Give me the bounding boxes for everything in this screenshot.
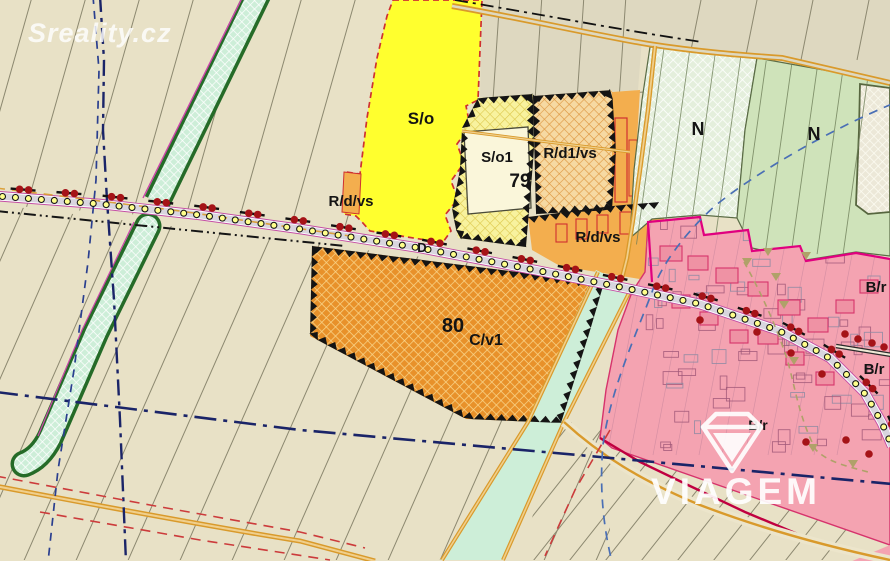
viagem-watermark-text: VIAGEM — [651, 471, 821, 512]
label-n-west: N — [692, 119, 705, 139]
label-rd1vs: R/d1/vs — [543, 145, 596, 162]
label-br-mid: B/r — [864, 361, 885, 378]
label-so: S/o — [408, 109, 434, 128]
label-79: 79 — [509, 171, 530, 192]
label-d: D — [417, 240, 426, 255]
sreality-watermark-text: Sreality.cz — [28, 18, 172, 48]
label-rdvs-west: R/d/vs — [328, 193, 373, 210]
zone-white-hatch — [856, 84, 890, 214]
label-br-top: B/r — [866, 279, 887, 296]
label-rdvs-east: R/d/vs — [575, 229, 620, 246]
zoning-map-canvas: S/o R/d/vs S/o1 79 R/d1/vs R/d/vs D 80 C… — [0, 0, 890, 561]
label-so1: S/o1 — [481, 149, 513, 166]
zoning-map-image[interactable]: S/o R/d/vs S/o1 79 R/d1/vs R/d/vs D 80 C… — [0, 0, 890, 561]
label-n-east: N — [808, 124, 821, 144]
label-cv1: C/v1 — [469, 332, 503, 349]
sreality-watermark: Sreality.cz — [28, 18, 172, 48]
label-80: 80 — [442, 315, 464, 337]
